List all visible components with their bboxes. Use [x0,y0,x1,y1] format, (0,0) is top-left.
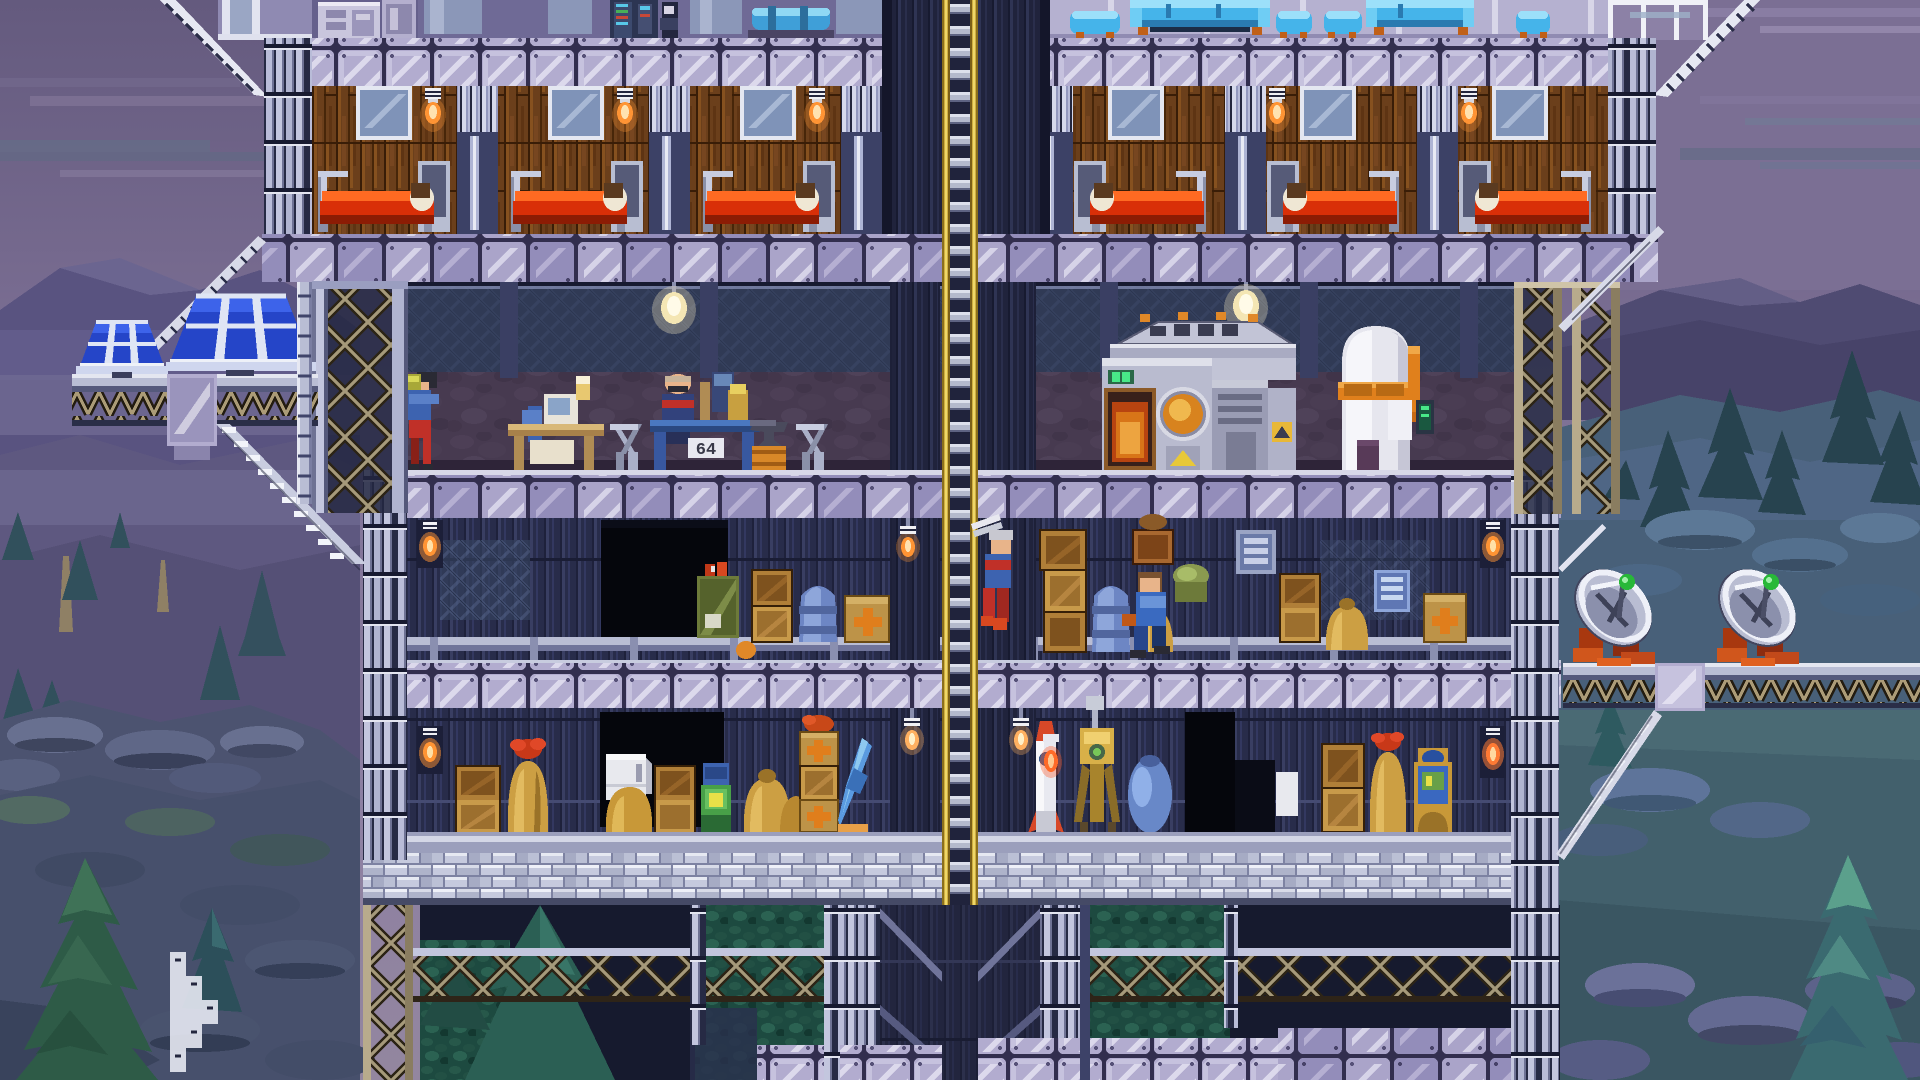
svg-text:64: 64 [696,441,716,460]
